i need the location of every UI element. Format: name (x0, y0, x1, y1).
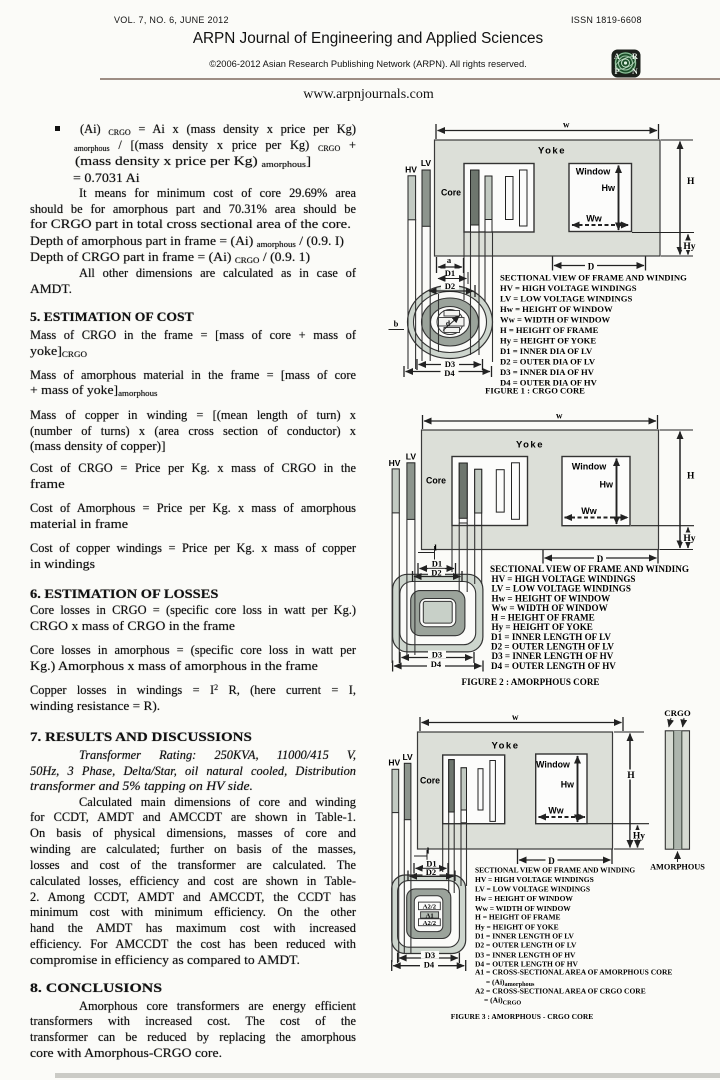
svg-text:Hy = HEIGHT OF YOKE: Hy = HEIGHT OF YOKE (492, 622, 593, 632)
svg-text:D2 = OUTER LENGTH OF LV: D2 = OUTER LENGTH OF LV (475, 941, 577, 950)
svg-text:HV: HV (388, 758, 400, 768)
svg-text:LV: LV (421, 158, 432, 168)
svg-text:H: H (687, 472, 695, 482)
svg-text:Hy: Hy (683, 242, 695, 252)
svg-text:D4: D4 (424, 960, 435, 970)
svg-text:HV: HV (405, 165, 417, 175)
svg-text:D2 = OUTER DIA OF LV: D2 = OUTER DIA OF LV (500, 356, 596, 366)
svg-text:A2 = CROSS-SECTIONAL AREA OF C: A2 = CROSS-SECTIONAL AREA OF CRGO CORE (475, 987, 646, 996)
svg-text:H = HEIGHT OF FRAME: H = HEIGHT OF FRAME (475, 913, 561, 922)
svg-text:D3: D3 (432, 650, 442, 660)
svg-text:H: H (627, 771, 635, 781)
svg-text:A2/2: A2/2 (423, 903, 437, 910)
svg-text:HV: HV (389, 458, 401, 468)
svg-text:w: w (512, 712, 519, 722)
svg-text:D3 = INNER DIA OF HV: D3 = INNER DIA OF HV (500, 367, 595, 377)
svg-text:H = HEIGHT OF FRAME: H = HEIGHT OF FRAME (500, 325, 599, 335)
svg-text:= (Ai)CRGO: = (Ai)CRGO (484, 996, 521, 1007)
svg-text:LV = LOW VOLTAGE WINDINGS: LV = LOW VOLTAGE WINDINGS (500, 293, 632, 303)
svg-text:w: w (556, 413, 563, 421)
svg-text:SECTIONAL VIEW OF FRAME AND WI: SECTIONAL VIEW OF FRAME AND WINDING (475, 865, 635, 874)
svg-text:R: R (632, 52, 638, 61)
svg-text:Ww: Ww (586, 214, 602, 224)
svg-text:Ww = WIDTH OF WINDOW: Ww = WIDTH OF WINDOW (492, 603, 608, 613)
svg-text:Yoke: Yoke (538, 146, 566, 157)
svg-text:H: H (687, 177, 695, 187)
svg-text:D3 = INNER LENGTH OF HV: D3 = INNER LENGTH OF HV (475, 950, 576, 959)
svg-text:D2: D2 (431, 567, 441, 577)
svg-text:Core: Core (441, 188, 461, 198)
svg-text:CRGO: CRGO (664, 708, 691, 718)
svg-text:P: P (615, 67, 620, 76)
svg-text:D4: D4 (431, 659, 442, 669)
svg-text:LV: LV (402, 752, 413, 762)
svg-text:Hy = HEIGHT OF YOKE: Hy = HEIGHT OF YOKE (475, 922, 559, 931)
svg-text:D1: D1 (445, 268, 455, 278)
svg-text:Hy = HEIGHT OF YOKE: Hy = HEIGHT OF YOKE (500, 335, 596, 345)
svg-text:Window: Window (572, 462, 607, 472)
svg-text:H = HEIGHT OF FRAME: H = HEIGHT OF FRAME (491, 613, 595, 623)
svg-text:LV = LOW VOLTAGE WINDINGS: LV = LOW VOLTAGE WINDINGS (492, 584, 631, 594)
svg-text:Core: Core (426, 476, 446, 486)
svg-text:Yoke: Yoke (516, 440, 544, 451)
svg-text:LV = LOW VOLTAGE WINDINGS: LV = LOW VOLTAGE WINDINGS (475, 885, 590, 894)
svg-text:SECTIONAL VIEW OF FRAME AND WI: SECTIONAL VIEW OF FRAME AND WINDING (500, 273, 687, 283)
svg-text:Ww: Ww (548, 806, 563, 816)
svg-text:Hy: Hy (683, 534, 695, 544)
svg-text:D3: D3 (425, 950, 435, 960)
svg-text:Yoke: Yoke (491, 741, 519, 752)
svg-text:AMORPHOUS: AMORPHOUS (650, 863, 705, 872)
svg-text:D3 = INNER LENGTH OF HV: D3 = INNER LENGTH OF HV (492, 651, 614, 661)
svg-text:Hw: Hw (600, 480, 614, 490)
svg-text:HV = HIGH VOLTAGE WINDINGS: HV = HIGH VOLTAGE WINDINGS (492, 574, 636, 584)
svg-text:N: N (632, 67, 638, 76)
svg-text:D: D (597, 554, 604, 564)
svg-text:Ww = WIDTH OF WINDOW: Ww = WIDTH OF WINDOW (500, 314, 611, 324)
svg-text:A2/2: A2/2 (423, 920, 437, 927)
svg-text:A: A (614, 52, 620, 61)
svg-text:D: D (588, 262, 595, 272)
svg-text:Ww: Ww (581, 506, 597, 516)
svg-text:A1 = CROSS-SECTIONAL AREA OF A: A1 = CROSS-SECTIONAL AREA OF AMORPHOUS C… (475, 968, 672, 977)
svg-text:FIGURE 1 : CRGO CORE: FIGURE 1 : CRGO CORE (485, 386, 585, 396)
svg-text:HV = HIGH VOLTAGE WINDINGS: HV = HIGH VOLTAGE WINDINGS (475, 875, 594, 884)
svg-text:D1 = INNER LENGTH OF LV: D1 = INNER LENGTH OF LV (475, 931, 575, 940)
svg-text:LV: LV (406, 451, 417, 461)
svg-text:FIGURE 3 : AMORPHOUS - CRGO CO: FIGURE 3 : AMORPHOUS - CRGO CORE (451, 1012, 594, 1021)
svg-text:Hw = HEIGHT OF WINDOW: Hw = HEIGHT OF WINDOW (475, 894, 573, 903)
svg-text:SECTIONAL VIEW OF FRAME AND WI: SECTIONAL VIEW OF FRAME AND WINDING (490, 564, 689, 574)
svg-text:HV = HIGH VOLTAGE WINDINGS: HV = HIGH VOLTAGE WINDINGS (500, 283, 637, 293)
svg-text:Core: Core (420, 776, 440, 786)
svg-text:Window: Window (536, 760, 570, 770)
svg-text:Ww = WIDTH OF WINDOW: Ww = WIDTH OF WINDOW (475, 904, 571, 913)
svg-text:Hw = HEIGHT OF WINDOW: Hw = HEIGHT OF WINDOW (492, 593, 611, 603)
svg-text:Hw: Hw (561, 780, 574, 790)
svg-text:D1 = INNER DIA OF LV: D1 = INNER DIA OF LV (500, 346, 593, 356)
svg-text:Hw = HEIGHT OF WINDOW: Hw = HEIGHT OF WINDOW (500, 304, 613, 314)
svg-text:b: b (394, 319, 399, 329)
svg-text:Hw: Hw (602, 183, 616, 193)
svg-text:FIGURE 2 : AMORPHOUS CORE: FIGURE 2 : AMORPHOUS CORE (462, 677, 600, 687)
svg-text:w: w (563, 120, 570, 130)
svg-text:D4: D4 (444, 368, 455, 378)
svg-text:D4 = OUTER LENGTH OF HV: D4 = OUTER LENGTH OF HV (491, 661, 616, 671)
svg-text:A1: A1 (426, 912, 434, 919)
svg-text:D2 = OUTER LENGTH OF LV: D2 = OUTER LENGTH OF LV (491, 642, 614, 652)
svg-text:D1 = INNER LENGTH OF LV: D1 = INNER LENGTH OF LV (491, 632, 611, 642)
svg-text:D2: D2 (445, 281, 455, 291)
svg-text:Window: Window (576, 167, 611, 177)
svg-text:Hy: Hy (633, 832, 645, 842)
